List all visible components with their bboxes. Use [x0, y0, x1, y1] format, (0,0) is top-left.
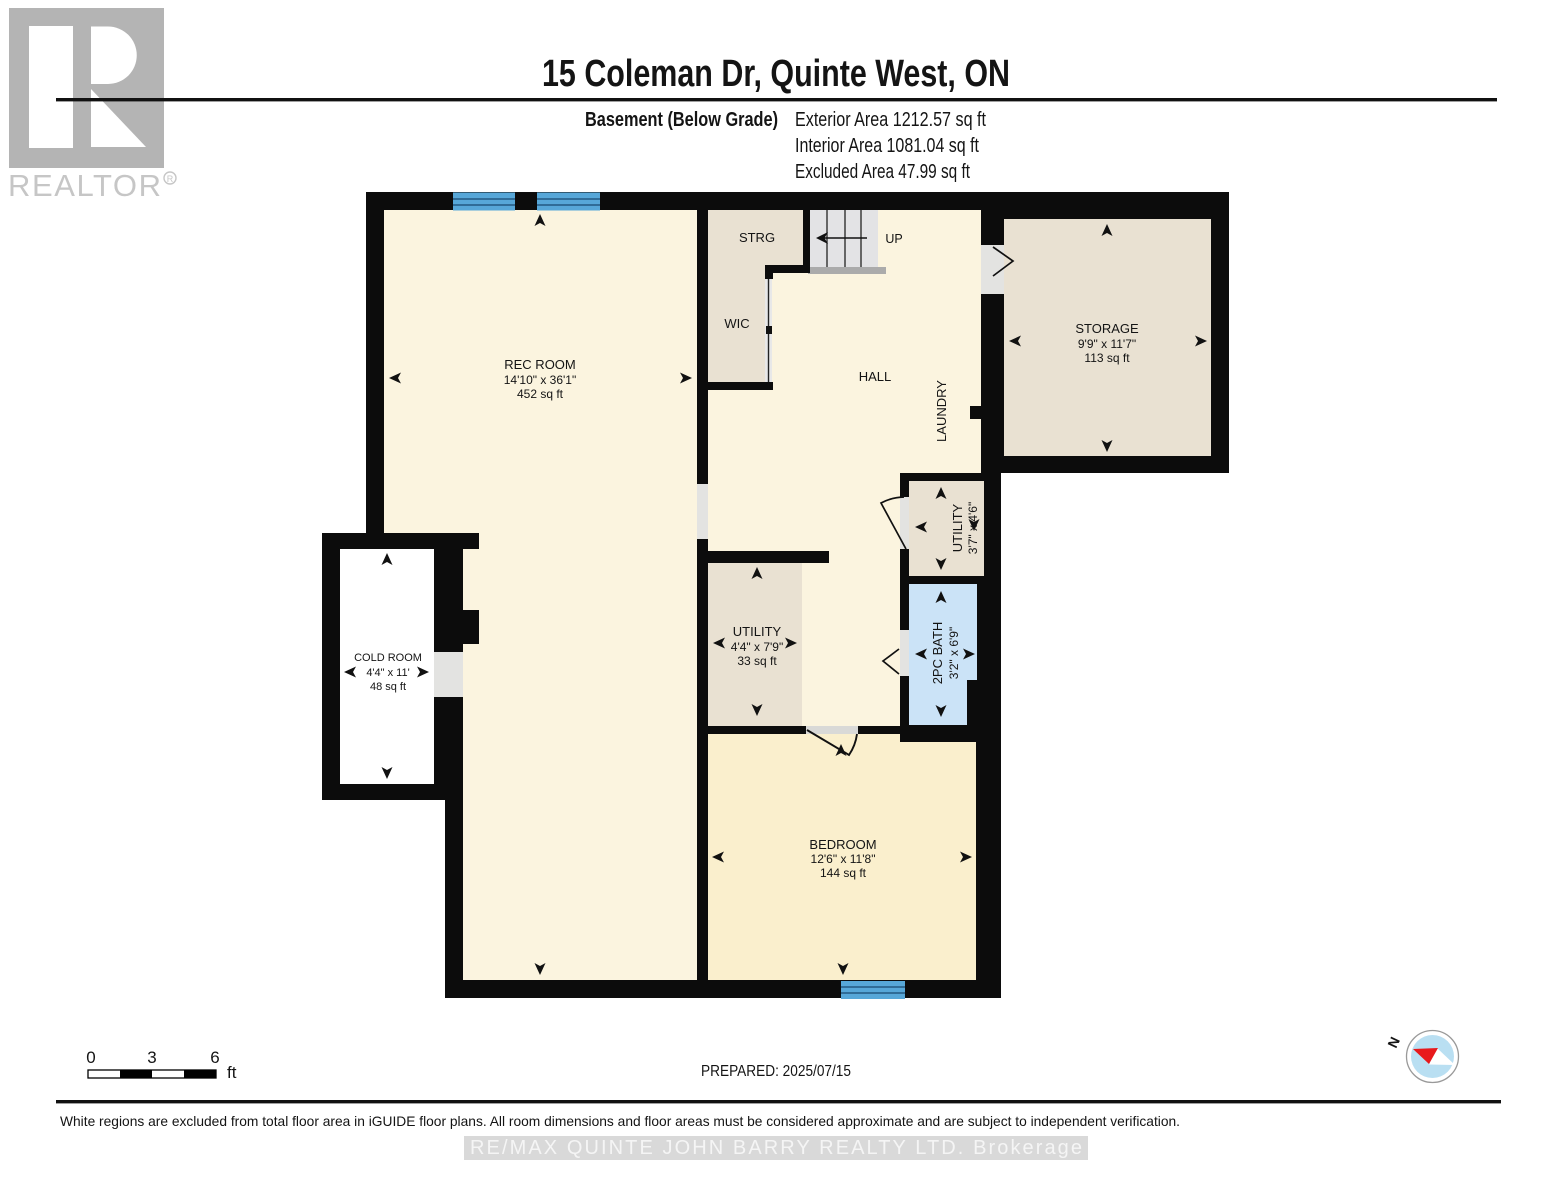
svg-text:RE/MAX QUINTE JOHN BARRY REALT: RE/MAX QUINTE JOHN BARRY REALTY LTD. Bro… [470, 1137, 1082, 1159]
svg-text:Exterior Area 1212.57 sq ft: Exterior Area 1212.57 sq ft [795, 109, 986, 131]
svg-text:3: 3 [147, 1048, 156, 1067]
svg-text:White regions are excluded fro: White regions are excluded from total fl… [60, 1113, 1180, 1129]
svg-text:LAUNDRY: LAUNDRY [934, 380, 949, 442]
svg-text:144 sq ft: 144 sq ft [820, 866, 867, 880]
svg-text:Interior Area 1081.04 sq ft: Interior Area 1081.04 sq ft [795, 135, 979, 157]
svg-text:12'6" x 11'8": 12'6" x 11'8" [811, 852, 876, 866]
svg-text:9'9" x 11'7": 9'9" x 11'7" [1078, 337, 1136, 351]
svg-text:3'2" x 6'9": 3'2" x 6'9" [947, 627, 961, 679]
svg-text:113 sq ft: 113 sq ft [1084, 351, 1130, 365]
svg-text:4'4" x 7'9": 4'4" x 7'9" [731, 640, 783, 654]
svg-text:6: 6 [210, 1048, 219, 1067]
svg-text:452 sq ft: 452 sq ft [517, 387, 564, 401]
svg-text:COLD ROOM: COLD ROOM [354, 652, 422, 664]
svg-text:15 Coleman Dr, Quinte West, ON: 15 Coleman Dr, Quinte West, ON [542, 53, 1010, 95]
svg-text:STRG: STRG [739, 230, 775, 245]
svg-text:PREPARED: 2025/07/15: PREPARED: 2025/07/15 [701, 1063, 851, 1080]
svg-text:2PC BATH: 2PC BATH [930, 622, 945, 685]
svg-text:UTILITY: UTILITY [950, 503, 965, 552]
svg-text:33 sq ft: 33 sq ft [737, 654, 777, 668]
svg-text:14'10" x 36'1": 14'10" x 36'1" [504, 373, 577, 387]
svg-text:ft: ft [227, 1063, 237, 1082]
svg-text:4'4" x 11': 4'4" x 11' [366, 667, 409, 679]
svg-text:3'7" x 4'6": 3'7" x 4'6" [966, 502, 980, 554]
svg-text:STORAGE: STORAGE [1075, 321, 1139, 336]
svg-text:UTILITY: UTILITY [733, 624, 782, 639]
svg-text:BEDROOM: BEDROOM [809, 837, 876, 852]
svg-text:48 sq ft: 48 sq ft [370, 681, 406, 693]
svg-text:REC ROOM: REC ROOM [504, 357, 576, 372]
svg-text:Excluded Area 47.99 sq ft: Excluded Area 47.99 sq ft [795, 161, 970, 183]
svg-text:HALL: HALL [859, 369, 892, 384]
svg-text:UP: UP [885, 232, 902, 246]
svg-text:R: R [167, 174, 174, 184]
svg-text:0: 0 [86, 1048, 95, 1067]
svg-text:WIC: WIC [724, 316, 749, 331]
svg-text:Basement (Below Grade): Basement (Below Grade) [585, 109, 778, 131]
